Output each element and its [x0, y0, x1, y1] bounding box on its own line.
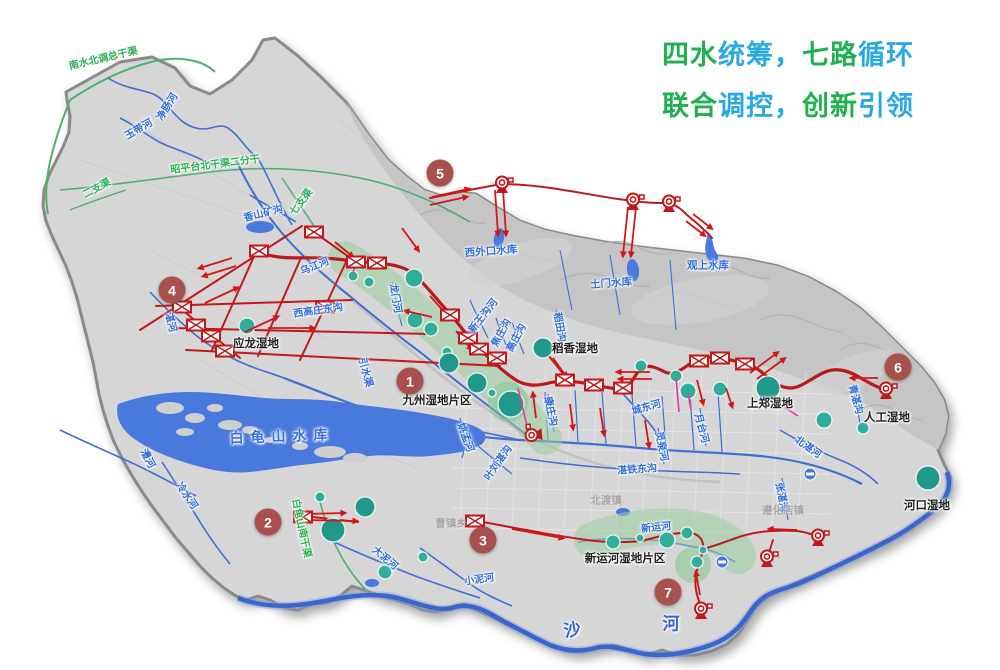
- weir-icon: [804, 468, 816, 480]
- sluice-gate-icon: [347, 257, 365, 268]
- wetland-circle: [405, 269, 423, 287]
- sluice-gate-icon: [459, 333, 477, 344]
- wetland-circle: [756, 376, 780, 400]
- map-canvas: 南水北调总干渠昭平台北干渠二分干二支渠七支渠白龟山南干渠净肠河玉带河香山矿沟乌江…: [0, 0, 1000, 670]
- wetland-circle: [355, 497, 375, 517]
- sluice-gate-icon: [294, 512, 312, 523]
- wetland-circle: [488, 389, 496, 397]
- sluice-gate-icon: [250, 246, 268, 257]
- terrain: [43, 38, 951, 655]
- wetland-circle: [699, 546, 707, 554]
- sluice-gate-icon: [202, 331, 220, 342]
- wetland-circle: [691, 556, 703, 568]
- sluice-gate-icon: [736, 359, 754, 370]
- sluice-gate-icon: [614, 383, 632, 394]
- wetland-circle: [439, 353, 459, 373]
- sluice-gate-icon: [585, 380, 603, 391]
- sluice-gate-icon: [488, 353, 506, 364]
- sluice-gate-icon: [441, 310, 459, 321]
- sluice-gate-icon: [466, 516, 484, 527]
- wetland-circle: [681, 527, 693, 539]
- weir-icon: [716, 556, 728, 568]
- p1: [246, 221, 274, 233]
- sluice-gate-icon: [316, 302, 334, 313]
- wetland-circle: [315, 492, 325, 502]
- wetland-circle: [857, 422, 869, 434]
- pump-station-icon: [663, 196, 680, 213]
- sluice-gate-icon: [305, 227, 323, 238]
- wetland-circle: [816, 412, 832, 428]
- sluice-gate-icon: [368, 258, 386, 269]
- sluice-gate-icon: [173, 302, 191, 313]
- wetland-circle: [916, 466, 940, 490]
- wetland-circle: [424, 322, 438, 336]
- wetland-circle: [467, 373, 487, 393]
- sluice-gate-icon: [216, 346, 234, 357]
- wetland-circle: [636, 534, 644, 542]
- p3: [365, 579, 379, 587]
- sluice-gate-icon: [187, 320, 205, 331]
- wetland-circle: [659, 532, 675, 548]
- wetland-circle: [713, 382, 727, 396]
- wetland-circle: [418, 552, 428, 562]
- wetland-circle: [364, 277, 374, 287]
- wetland-circle: [533, 338, 553, 358]
- wetland-circle: [635, 360, 647, 372]
- sluice-gate-icon: [690, 356, 708, 367]
- wetland-circle: [606, 535, 620, 549]
- sluice-gate-icon: [470, 344, 488, 355]
- water-system-map: [0, 0, 1000, 670]
- sluice-gate-icon: [711, 353, 729, 364]
- sluice-gate-icon: [556, 375, 574, 386]
- wetland-circle: [378, 565, 392, 579]
